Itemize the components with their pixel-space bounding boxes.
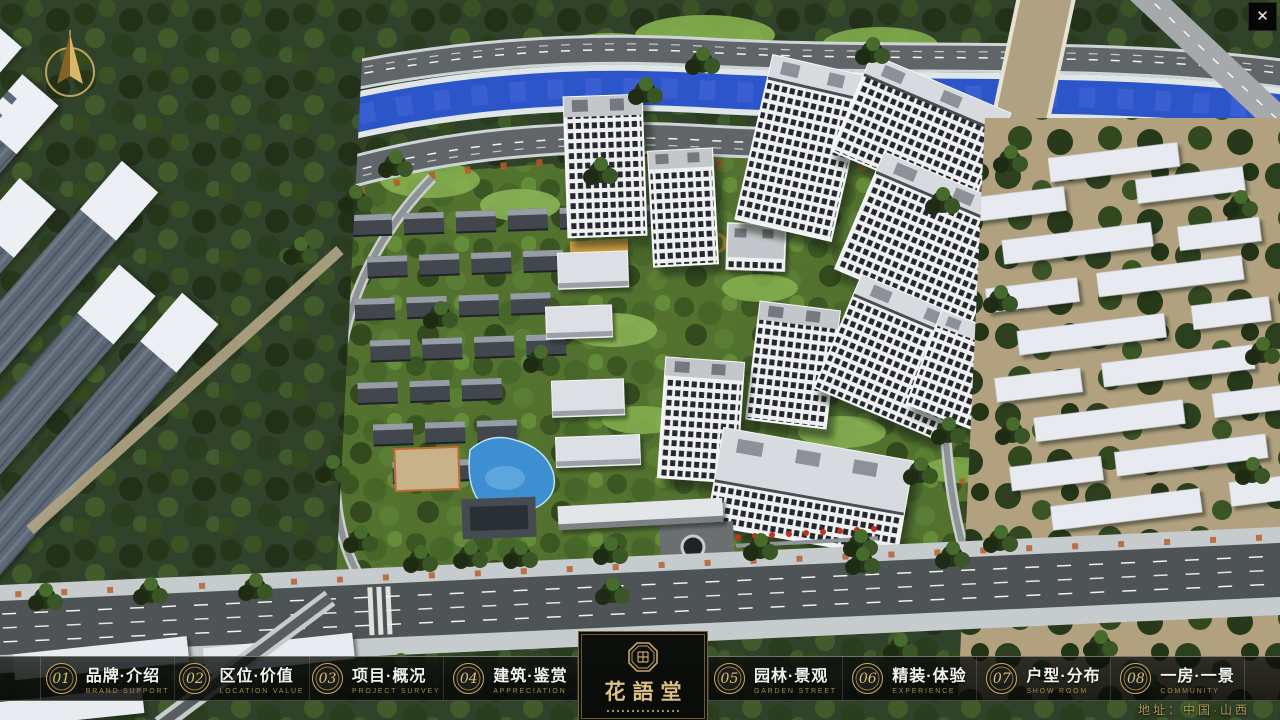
nav-label-en: LOCATION VALUE <box>219 688 304 695</box>
close-button[interactable]: ✕ <box>1248 2 1277 31</box>
nav-item-interior-experience[interactable]: 06 精装·体验EXPERIENCE <box>842 657 976 700</box>
nav-label-en: COMMUNITY <box>1160 688 1219 695</box>
seal-emblem-icon <box>627 641 659 673</box>
item-06-badge: 06 <box>852 663 883 694</box>
presentation-window: ✕ 01 品牌·介绍BRAND SUPPORT 02 区位·价值LOCATION… <box>0 0 1280 720</box>
nav-label-en: GARDEN STREET <box>754 688 837 695</box>
nav-item-project-overview[interactable]: 03 项目·概况PROJECT SURVEY <box>310 657 444 700</box>
project-logo-panel[interactable]: 花語堂 <box>578 631 708 720</box>
nav-item-floorplan-distribution[interactable]: 07 户型·分布SHOW ROOM <box>976 657 1110 700</box>
nav-label-zh: 建筑·鉴赏 <box>493 662 567 686</box>
item-02-badge: 02 <box>179 663 210 694</box>
item-08-number: 08 <box>1127 671 1145 687</box>
nav-right-spacer <box>1244 657 1280 700</box>
item-05-badge: 05 <box>714 663 745 694</box>
nav-label-zh: 一房·一景 <box>1160 662 1234 686</box>
item-04-number: 04 <box>460 671 478 687</box>
nav-label-en: EXPERIENCE <box>892 688 955 695</box>
nav-label-zh: 区位·价值 <box>219 662 293 686</box>
aerial-site-render <box>0 0 1280 720</box>
nav-label-en: APPRECIATION <box>493 688 566 695</box>
compass-icon <box>38 26 102 110</box>
nav-item-room-view[interactable]: 08 一房·一景COMMUNITY <box>1110 657 1244 700</box>
item-06-number: 06 <box>859 671 877 687</box>
item-03-number: 03 <box>319 671 337 687</box>
nav-item-location-value[interactable]: 02 区位·价值LOCATION VALUE <box>175 657 309 700</box>
nav-label-zh: 户型·分布 <box>1026 662 1100 686</box>
item-01-badge: 01 <box>46 663 77 694</box>
item-04-badge: 04 <box>453 663 484 694</box>
item-01-number: 01 <box>52 671 70 687</box>
item-02-number: 02 <box>186 671 204 687</box>
nav-label-zh: 精装·体验 <box>892 662 966 686</box>
nav-item-landscape[interactable]: 05 园林·景观GARDEN STREET <box>708 657 842 700</box>
nav-label-en: PROJECT SURVEY <box>352 688 440 695</box>
item-08-badge: 08 <box>1120 663 1151 694</box>
nav-label-en: SHOW ROOM <box>1026 688 1088 695</box>
nav-item-brand-intro[interactable]: 01 品牌·介绍BRAND SUPPORT <box>41 657 175 700</box>
project-address: 地址：中国·山西 <box>1138 701 1250 718</box>
item-07-number: 07 <box>993 671 1011 687</box>
item-05-number: 05 <box>721 671 739 687</box>
logo-title: 花語堂 <box>598 676 689 706</box>
nav-label-zh: 品牌·介绍 <box>86 662 160 686</box>
logo-subtitle-line <box>607 710 679 712</box>
nav-label-en: BRAND SUPPORT <box>86 688 170 695</box>
nav-group-left: 01 品牌·介绍BRAND SUPPORT 02 区位·价值LOCATION V… <box>41 657 578 700</box>
item-03-badge: 03 <box>312 663 343 694</box>
nav-group-right: 05 园林·景观GARDEN STREET 06 精装·体验EXPERIENCE… <box>708 657 1244 700</box>
nav-item-architecture[interactable]: 04 建筑·鉴赏APPRECIATION <box>444 657 578 700</box>
nav-label-zh: 项目·概况 <box>352 662 426 686</box>
nav-left-spacer <box>0 657 41 700</box>
nav-label-zh: 园林·景观 <box>754 662 828 686</box>
item-07-badge: 07 <box>986 663 1017 694</box>
